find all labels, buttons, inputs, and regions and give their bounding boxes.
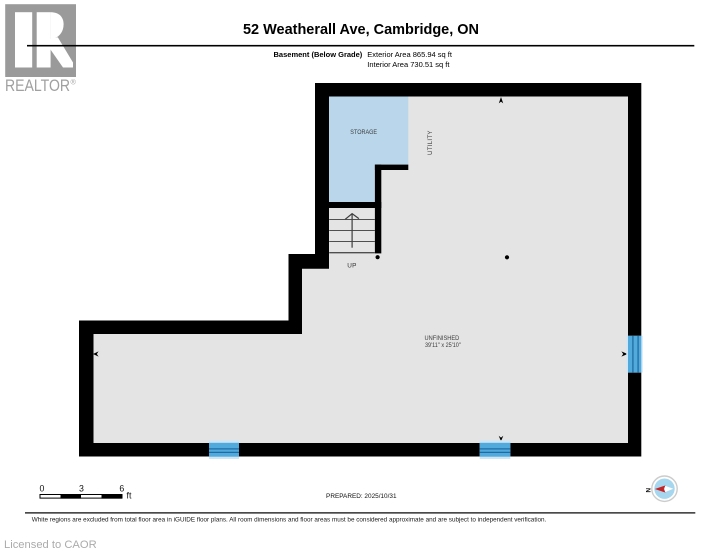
- svg-text:Basement (Below Grade): Basement (Below Grade): [274, 50, 363, 59]
- svg-text:STORAGE: STORAGE: [350, 129, 377, 136]
- svg-text:Licensed to CAOR: Licensed to CAOR: [4, 539, 97, 551]
- svg-text:0: 0: [40, 484, 45, 494]
- svg-text:ft: ft: [127, 491, 132, 501]
- svg-text:PREPARED: 2025/10/31: PREPARED: 2025/10/31: [326, 493, 397, 500]
- svg-text:REALTOR: REALTOR: [5, 77, 70, 95]
- svg-text:Exterior Area 865.94 sq ft: Exterior Area 865.94 sq ft: [367, 50, 453, 59]
- svg-text:UP: UP: [347, 263, 356, 270]
- svg-text:UTILITY: UTILITY: [427, 130, 434, 155]
- svg-text:Interior Area 730.51 sq ft: Interior Area 730.51 sq ft: [367, 60, 450, 69]
- svg-text:®: ®: [71, 78, 77, 87]
- svg-text:39'11" x 25'10": 39'11" x 25'10": [425, 342, 461, 349]
- svg-text:N: N: [645, 488, 652, 493]
- svg-text:3: 3: [79, 484, 84, 494]
- svg-text:52 Weatherall Ave, Cambridge,: 52 Weatherall Ave, Cambridge, ON: [243, 22, 479, 38]
- svg-text:6: 6: [119, 484, 124, 494]
- svg-text:White regions are excluded fro: White regions are excluded from total fl…: [32, 517, 547, 524]
